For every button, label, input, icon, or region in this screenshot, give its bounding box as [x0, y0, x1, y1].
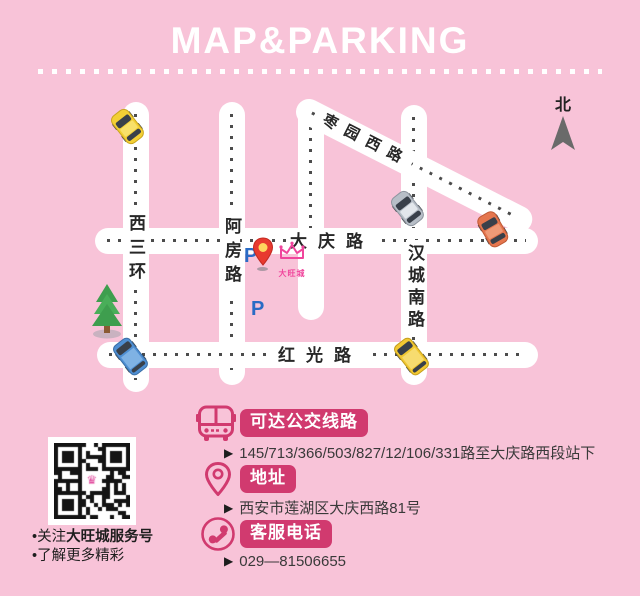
map-parking-infographic: MAP&PARKING 枣园西路 西三环 阿房路 汉城南路 大庆路 红光路 北 … — [0, 0, 640, 596]
qr-code — [48, 437, 136, 525]
location-pin-icon — [252, 237, 274, 272]
road-label-hongguanglu: 红光路 — [274, 345, 366, 366]
bus-badge: 可达公交线路 — [240, 409, 368, 437]
road-label-xisanhuan: 西三环 — [127, 210, 144, 290]
qr-caption1-prefix: •关注 — [32, 529, 66, 545]
parking-p-south: P — [251, 299, 264, 319]
road-label-afanglu: 阿房路 — [223, 213, 240, 293]
venue-name: 大旺城 — [272, 268, 312, 279]
bus-detail-text: 145/713/366/503/827/12/106/331路至大庆路西段站下 — [239, 445, 595, 462]
page-title: MAP&PARKING — [0, 20, 640, 62]
tree-icon — [86, 282, 128, 345]
road-label-hanchengnanlu: 汉城南路 — [406, 240, 423, 336]
address-detail-text: 西安市莲湖区大庆西路81号 — [239, 500, 421, 517]
triangle-marker-icon: ▶ — [224, 446, 233, 460]
qr-caption1-bold: 大旺城服务号 — [66, 529, 153, 545]
north-arrow-icon — [547, 114, 579, 154]
qr-code-canvas — [54, 443, 130, 519]
triangle-marker-icon: ▶ — [224, 501, 233, 515]
phone-detail-text: 029—81506655 — [239, 553, 346, 570]
dotted-divider — [38, 69, 602, 74]
address-badge: 地址 — [240, 465, 296, 493]
triangle-marker-icon: ▶ — [224, 554, 233, 568]
road-unnamed-vertical — [298, 104, 324, 320]
address-detail: ▶西安市莲湖区大庆西路81号 — [224, 500, 421, 518]
phone-detail: ▶029—81506655 — [224, 553, 346, 571]
bus-icon — [195, 405, 237, 448]
qr-caption-line2: •了解更多精彩 — [32, 548, 124, 565]
crown-icon — [277, 241, 307, 262]
phone-badge: 客服电话 — [240, 520, 332, 548]
venue-logo: 大旺城 — [272, 241, 312, 279]
address-pin-icon — [202, 461, 234, 503]
north-label: 北 — [546, 98, 580, 114]
phone-icon — [200, 516, 236, 557]
bus-detail: ▶145/713/366/503/827/12/106/331路至大庆路西段站下 — [224, 445, 595, 463]
qr-caption-line1: •关注大旺城服务号 — [32, 529, 153, 546]
north-indicator: 北 — [546, 98, 580, 159]
